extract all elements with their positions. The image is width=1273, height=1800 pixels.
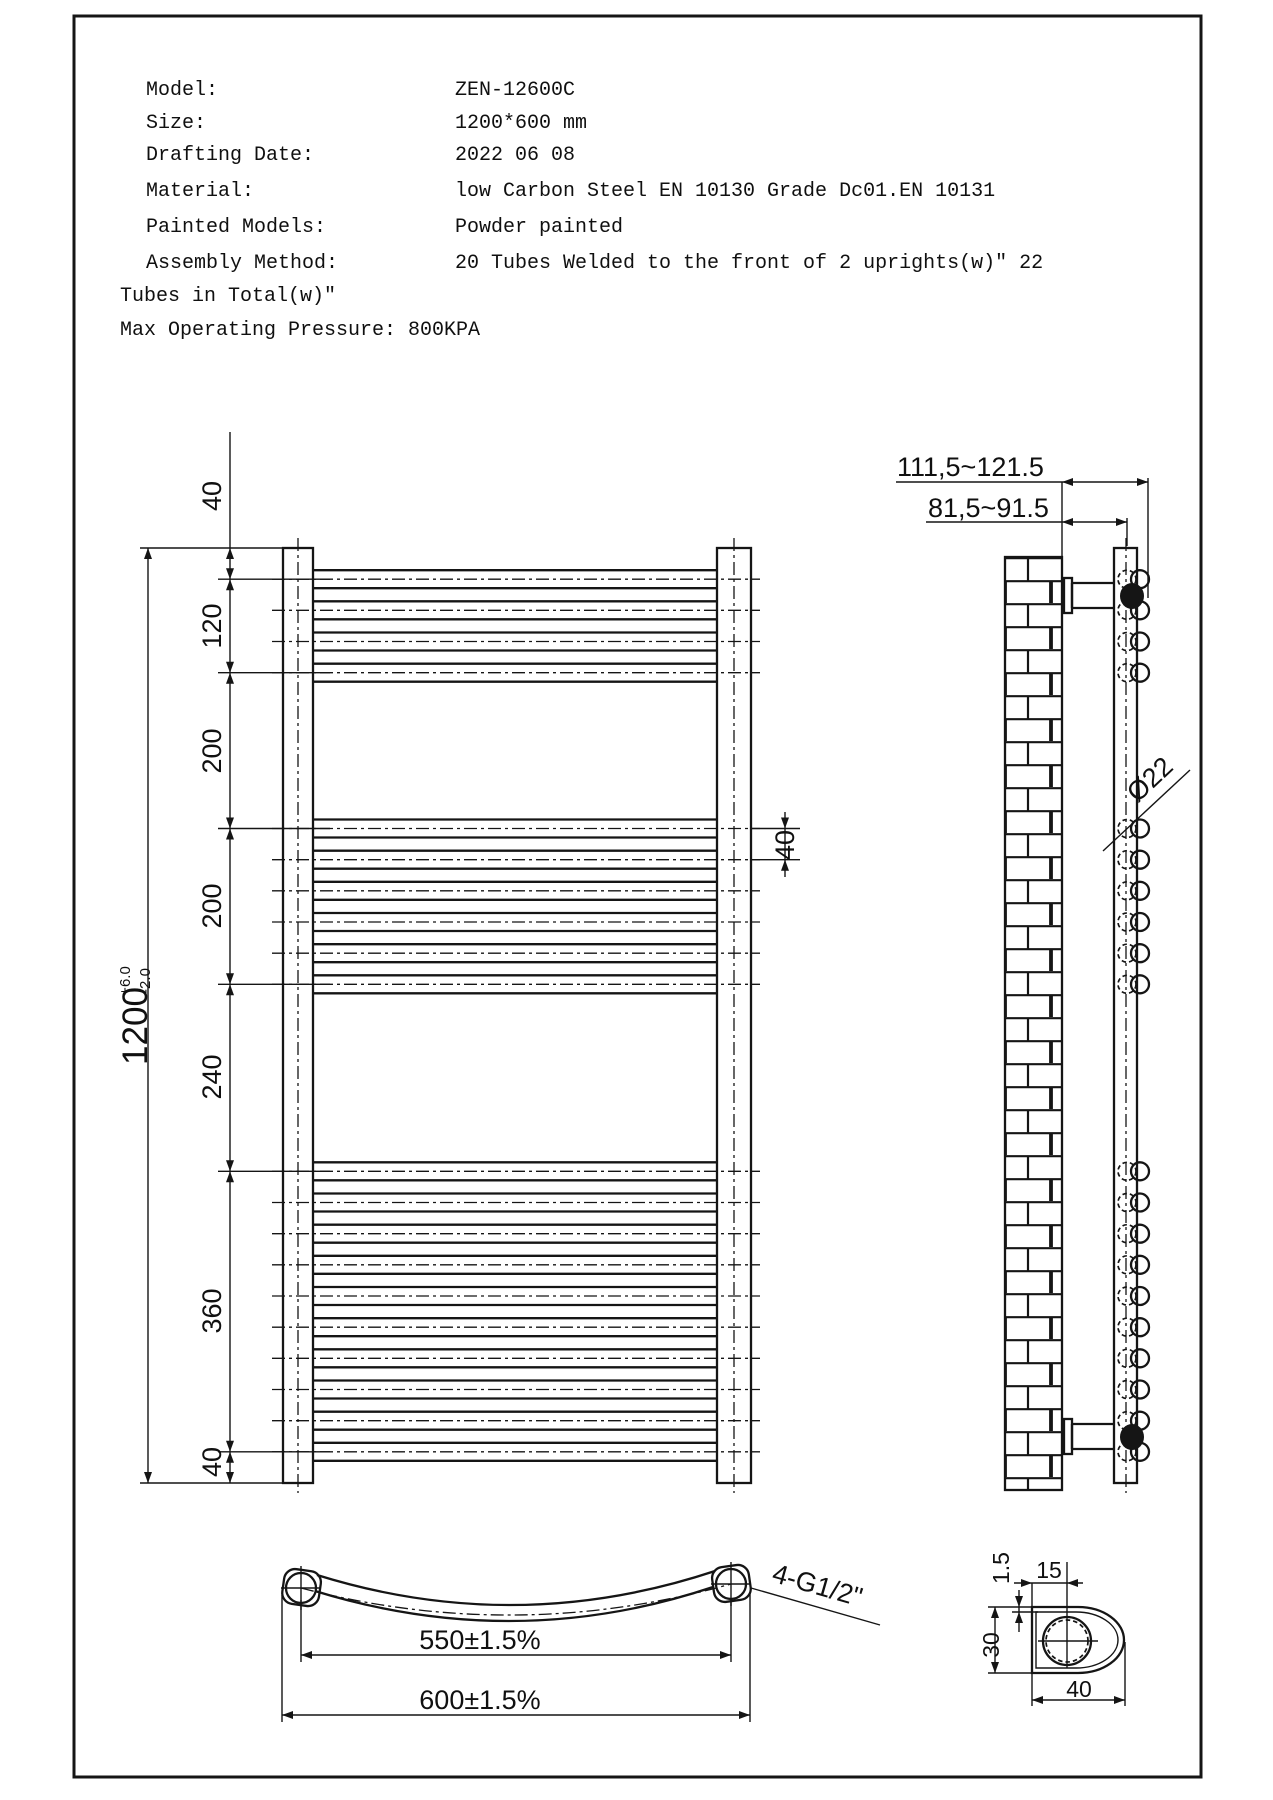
spec-label: Model: [146, 79, 218, 102]
dim-wall-thickness: 1.5 [988, 1552, 1014, 1584]
dim-arrow [226, 818, 234, 829]
side-view: 111,5~121.5 81,5~91.5 Ø22 [896, 452, 1190, 1493]
dim-arrow [226, 548, 234, 559]
top-bracket-nut [1120, 583, 1144, 609]
dim-arrow [226, 673, 234, 684]
wall-section [1005, 557, 1062, 1490]
spec-label: Painted Models: [146, 216, 326, 239]
dim-arrow [226, 1160, 234, 1171]
dim-segment-360: 360 [197, 1288, 227, 1333]
dim-segment-120: 120 [197, 603, 227, 648]
dim-arrow [144, 1472, 152, 1483]
bottom-view: 550±1.5% 600±1.5% 4-G1/2" [281, 1558, 880, 1722]
bottom-bracket-nut [1120, 1424, 1144, 1450]
drawing-sheet: Model: ZEN-12600C Size: 1200*600 mm Draf… [0, 0, 1273, 1800]
spec-value: 20 Tubes Welded to the front of 2 uprigh… [455, 252, 1043, 275]
engineering-drawing: Model: ZEN-12600C Size: 1200*600 mm Draf… [0, 0, 1273, 1800]
spec-label: Drafting Date: [146, 144, 314, 167]
top-bracket [1064, 578, 1114, 613]
dim-profile-width: 40 [1066, 1676, 1092, 1702]
dim-segment-40-top: 40 [197, 481, 227, 511]
spec-row-assembly: Assembly Method: 20 Tubes Welded to the … [146, 252, 1043, 275]
spec-label: Size: [146, 112, 206, 135]
front-tubes [272, 570, 760, 1461]
dim-tube-span: 550±1.5% [419, 1625, 540, 1655]
spec-value: 1200*600 mm [455, 112, 587, 135]
spec-row-painted: Painted Models: Powder painted [146, 216, 623, 239]
dim-segment-200a: 200 [197, 728, 227, 773]
dim-segment-240: 240 [197, 1054, 227, 1099]
dim-tube-pitch: 40 [770, 830, 800, 860]
bracket-arm [1072, 583, 1114, 608]
spec-row-date: Drafting Date: 2022 06 08 [146, 144, 575, 167]
bracket-flange [1064, 578, 1072, 613]
spec-value: ZEN-12600C [455, 79, 575, 102]
dim-profile-height: 30 [978, 1632, 1004, 1658]
spec-pressure-line: Max Operating Pressure: 800KPA [120, 319, 480, 342]
dim-arrow [144, 548, 152, 559]
dim-segment-200b: 200 [197, 883, 227, 928]
dim-arrow [226, 829, 234, 840]
dim-arrow [226, 1441, 234, 1452]
bracket-arm [1072, 1424, 1114, 1449]
front-view: 40 120 200 200 240 360 40 1200 +6.0 -2.0… [116, 432, 1148, 1719]
spec-header: Model: ZEN-12600C Size: 1200*600 mm Draf… [120, 79, 1043, 342]
spec-label: Assembly Method: [146, 252, 338, 275]
dim-segment-40-bottom: 40 [197, 1447, 227, 1477]
dim-arrow [226, 973, 234, 984]
spec-label: Material: [146, 180, 254, 203]
dim-arrow [226, 1171, 234, 1182]
front-dimension-lines [140, 432, 1148, 1719]
dim-bracket-depth-inner: 81,5~91.5 [928, 493, 1049, 523]
dim-overall-width: 600±1.5% [419, 1685, 540, 1715]
bracket-flange [1064, 1419, 1072, 1454]
dim-tolerance-plus: +6.0 [117, 966, 134, 996]
curved-tube-top-edge [317, 1571, 715, 1605]
dim-bracket-depth-outer: 111,5~121.5 [897, 452, 1044, 482]
profile-detail-view: 1.5 15 30 40 [978, 1552, 1125, 1706]
detail-dim-lines [988, 1583, 1125, 1706]
spec-value: 2022 06 08 [455, 144, 575, 167]
dim-hole-offset: 15 [1036, 1557, 1062, 1583]
dim-arrow [226, 1472, 234, 1483]
dim-overall-height: 1200 [116, 987, 155, 1065]
spec-wrap-line: Tubes in Total(w)" [120, 285, 336, 308]
dim-arrow [226, 662, 234, 673]
dim-tolerance-minus: -2.0 [137, 968, 154, 994]
fitting-crosshairs [281, 1562, 751, 1610]
dim-arrow [226, 568, 234, 579]
dim-arrow [226, 984, 234, 995]
spec-row-size: Size: 1200*600 mm [146, 112, 587, 135]
bottom-bracket [1064, 1419, 1114, 1454]
spec-row-material: Material: low Carbon Steel EN 10130 Grad… [146, 180, 995, 203]
dim-fitting: 4-G1/2" [769, 1558, 866, 1612]
spec-value: Powder painted [455, 216, 623, 239]
spec-value: low Carbon Steel EN 10130 Grade Dc01.EN … [455, 180, 995, 203]
spec-row-model: Model: ZEN-12600C [146, 79, 575, 102]
dim-arrow [226, 579, 234, 590]
dim-arrow [226, 1452, 234, 1463]
